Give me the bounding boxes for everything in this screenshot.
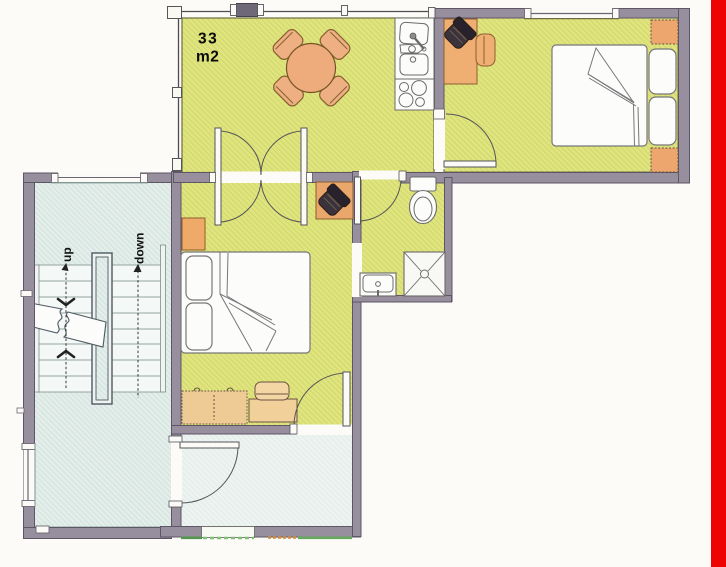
svg-text:33: 33	[198, 31, 218, 48]
svg-text:down: down	[133, 233, 147, 264]
svg-text:m2: m2	[196, 49, 219, 66]
svg-text:up: up	[60, 247, 74, 262]
